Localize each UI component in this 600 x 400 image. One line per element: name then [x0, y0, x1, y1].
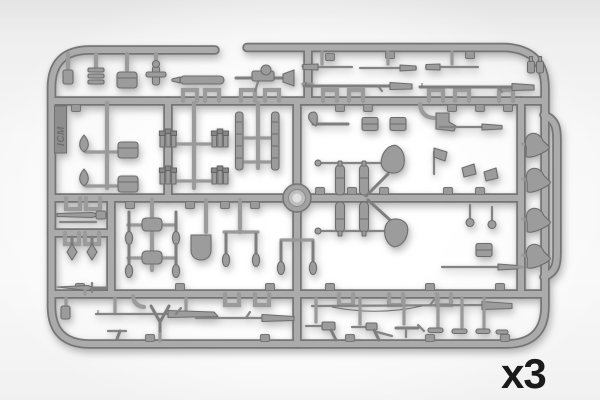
central-hub	[283, 184, 311, 212]
cleaning-rod-part	[315, 228, 390, 234]
bayonet-part	[57, 211, 106, 222]
lower-center-parts	[125, 200, 316, 278]
figure-part	[146, 61, 166, 86]
entrenching-tool-part	[172, 245, 179, 278]
hatchet-part	[434, 148, 447, 174]
entrenching-tool-part	[172, 212, 179, 245]
entrenching-tool-part	[222, 234, 229, 267]
pouch-part	[118, 142, 138, 158]
pouch-part	[142, 218, 162, 231]
gun-jacket-part	[172, 76, 224, 84]
diamond-pin-part	[67, 237, 77, 260]
water-bottle-part	[360, 161, 369, 195]
canteen-part	[80, 169, 89, 186]
pin-part	[61, 306, 70, 319]
boot-part	[484, 168, 498, 181]
crate-part	[362, 118, 378, 131]
crate-part	[476, 244, 492, 257]
pistol-part	[306, 322, 336, 340]
buckle-part	[63, 70, 73, 84]
sprue-photo: ICM	[0, 0, 600, 400]
ammo-magazine-part	[272, 112, 280, 170]
stick-grenade-cluster	[159, 166, 176, 184]
canteen-part	[80, 135, 89, 152]
boot-part	[436, 113, 456, 131]
bottom-strip-parts	[61, 294, 512, 341]
rifle-part	[442, 264, 522, 270]
pistol-part	[108, 331, 126, 339]
water-bottle-part	[360, 202, 369, 236]
ammo-magazine-part	[236, 112, 244, 170]
boot-part	[462, 164, 476, 177]
pouch-part	[142, 251, 162, 264]
right-upper-parts	[309, 104, 522, 270]
carbine-part	[303, 64, 352, 70]
sprue-illustration: ICM	[0, 0, 600, 400]
square-shovel-part	[191, 200, 211, 260]
lower-left-parts	[57, 198, 106, 294]
entrenching-tool-part	[125, 212, 132, 245]
carbine-part	[360, 65, 416, 71]
entrenching-tool-part	[125, 245, 132, 278]
entrenching-tool-part	[309, 242, 316, 275]
pistol-part	[396, 325, 424, 337]
pouch-part	[117, 72, 137, 88]
grenade-runner-parts	[159, 103, 279, 188]
stacked-discs-part	[88, 68, 104, 84]
pouch-part	[118, 176, 138, 192]
water-bottle-part	[336, 161, 345, 195]
shovel-part	[368, 200, 409, 248]
stick-grenade-cluster	[211, 166, 228, 184]
diamond-pin-part	[87, 237, 97, 260]
pin-part	[466, 205, 474, 227]
quantity-label: x3	[501, 353, 546, 395]
pickaxe-part	[309, 112, 348, 126]
water-bottle-part	[336, 202, 345, 236]
machine-gun-part	[236, 65, 294, 91]
stick-grenade-cluster	[211, 129, 228, 147]
entrenching-tool-part	[277, 242, 284, 275]
entrenching-tool-part	[252, 234, 259, 267]
stick-grenade-cluster	[159, 129, 176, 147]
pin-part	[488, 207, 496, 229]
left-upper-box-parts: ICM	[55, 103, 139, 192]
crate-part	[390, 118, 406, 131]
pistol-part	[352, 323, 392, 340]
long-rifle-part	[312, 300, 512, 311]
brand-logo-text: ICM	[56, 126, 67, 146]
